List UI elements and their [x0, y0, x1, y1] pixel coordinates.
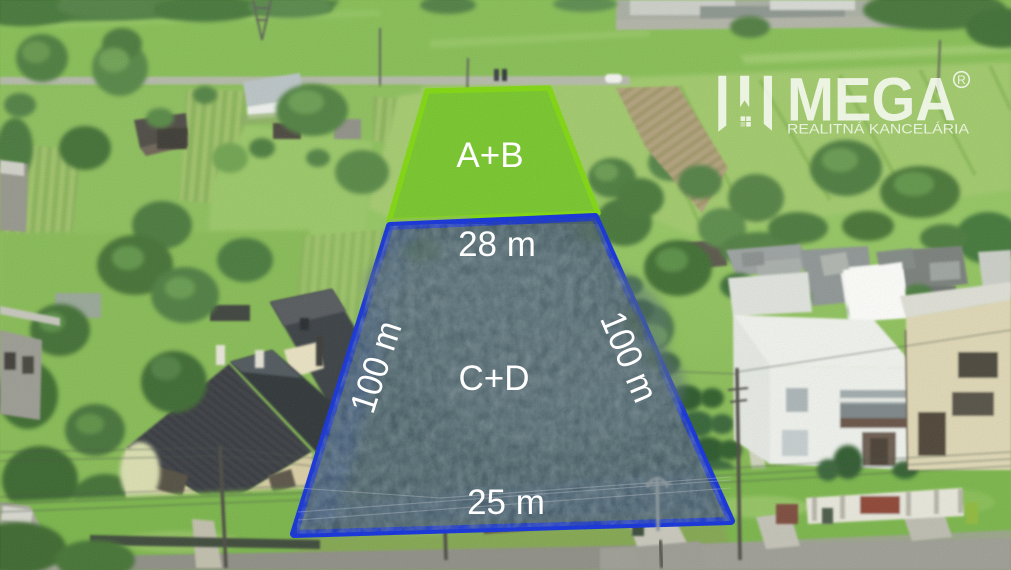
svg-text:REALITNÁ KANCELÁRIA: REALITNÁ KANCELÁRIA [787, 122, 969, 137]
svg-text:A+B: A+B [456, 136, 523, 175]
svg-text:28 m: 28 m [458, 225, 536, 264]
svg-text:C+D: C+D [459, 359, 530, 398]
svg-text:25 m: 25 m [467, 483, 545, 522]
svg-text:R: R [957, 73, 966, 87]
